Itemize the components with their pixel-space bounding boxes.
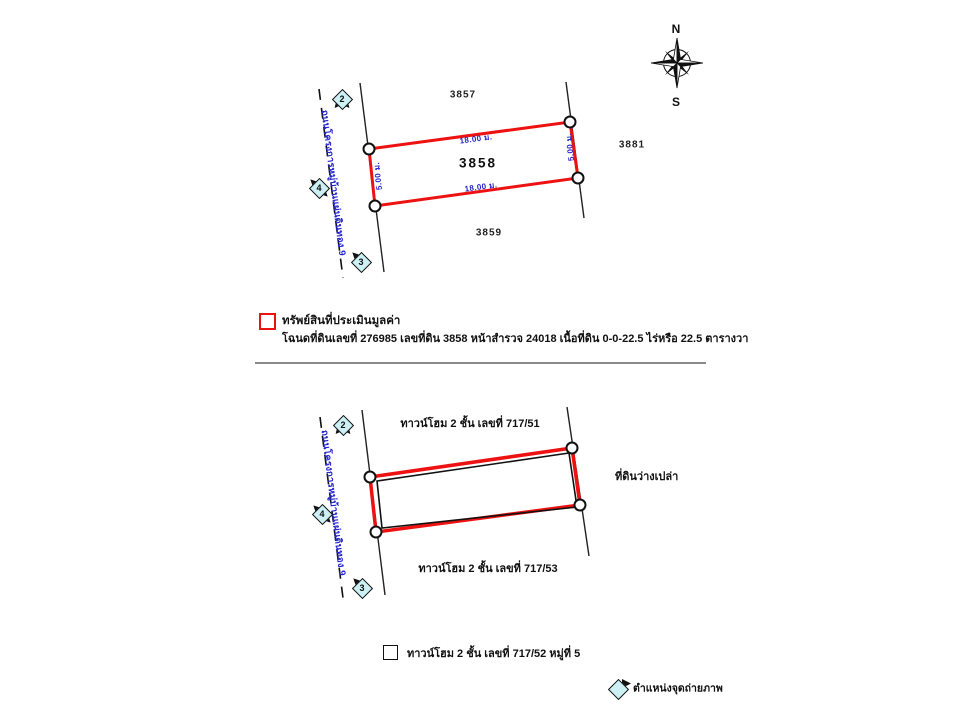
section-divider — [255, 362, 706, 364]
compass-south-label: S — [672, 95, 680, 109]
townhome-label-below: ทาวน์โฮม 2 ชั้น เลขที่ 717/53 — [418, 559, 557, 577]
subject-parcel-number: 3858 — [459, 156, 497, 171]
building-legend-label: ทาวน์โฮม 2 ชั้น เลขที่ 717/52 หมู่ที่ 5 — [407, 644, 580, 662]
property-legend-detail: โฉนดที่ดินเลขที่ 276985 เลขที่ดิน 3858 ห… — [282, 329, 748, 347]
photo-point-number: 2 — [335, 419, 351, 431]
bottom-corner-markers — [365, 443, 586, 538]
survey-linework — [0, 0, 960, 720]
parcel-number-below: 3859 — [476, 228, 502, 239]
dimension-right: 5.00 ม. — [562, 132, 578, 161]
photo-point-number: 4 — [314, 508, 330, 520]
compass-north-label: N — [672, 22, 681, 36]
photo-point-number: 4 — [311, 182, 327, 194]
parcel-number-right: 3881 — [619, 140, 645, 151]
photo-point-number: 3 — [353, 256, 369, 268]
building-legend-swatch — [383, 645, 398, 660]
property-legend-title: ทรัพย์สินที่ประเมินมูลค่า — [282, 312, 400, 330]
bottom-building-outline — [377, 453, 577, 528]
parcel-number-above: 3857 — [450, 90, 476, 101]
photo-point-number: 3 — [354, 582, 370, 594]
land-survey-sheet: N S 3857 3881 3859 3858 18.00 ม. 18.00 ม… — [0, 0, 960, 720]
photo-point-legend-label: ตำแหน่งจุดถ่ายภาพ — [633, 680, 723, 697]
dimension-left: 5.00 ม. — [370, 161, 386, 190]
bottom-plot-boundary — [370, 448, 580, 532]
townhome-label-above: ทาวน์โฮม 2 ชั้น เลขที่ 717/51 — [400, 414, 539, 432]
compass-rose-icon — [647, 35, 707, 91]
property-legend-swatch — [259, 313, 276, 330]
photo-point-number: 2 — [334, 93, 350, 105]
vacant-land-label: ที่ดินว่างเปล่า — [615, 467, 678, 485]
